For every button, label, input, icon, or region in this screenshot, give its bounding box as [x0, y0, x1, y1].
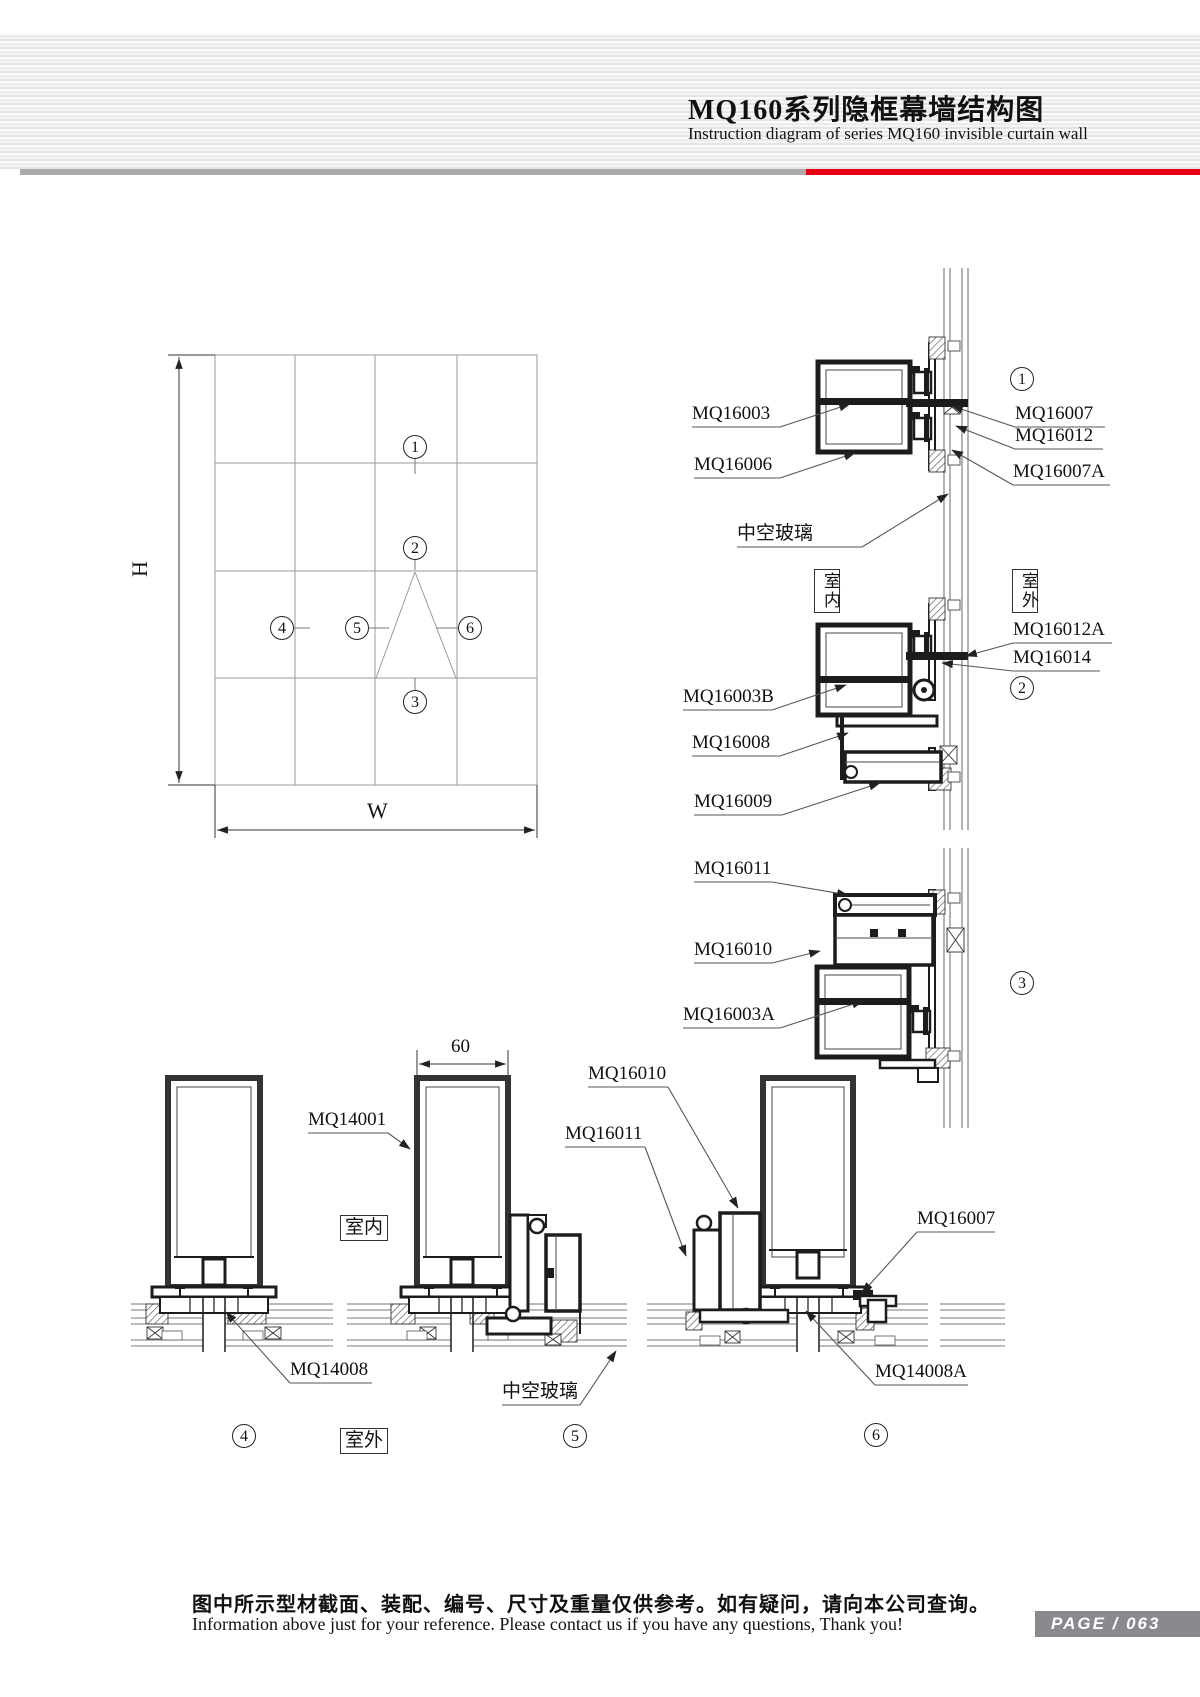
part-label-mq16009: MQ16009: [694, 791, 772, 813]
part-label-glass-btm: 中空玻璃: [502, 1381, 578, 1403]
dim-label-60: 60: [451, 1036, 470, 1058]
part-label-mq14008a: MQ14008A: [875, 1361, 967, 1383]
grid-marker-1: 1: [403, 435, 427, 459]
detail-marker-2: 2: [1010, 676, 1034, 700]
detail-marker-5: 5: [563, 1424, 587, 1448]
detail-marker-3: 3: [1010, 971, 1034, 995]
zone-indoor-vertical: 室内: [814, 569, 840, 613]
elevation-grid: [215, 355, 537, 785]
footer-note-en: Information above just for your referenc…: [192, 1614, 903, 1635]
part-label-mq16012a: MQ16012A: [1013, 619, 1105, 641]
glass-vertical: [944, 268, 968, 1128]
detail-marker-4: 4: [232, 1424, 256, 1448]
part-label-mq14008: MQ14008: [290, 1359, 368, 1381]
page-number-badge: PAGE / 063: [1035, 1611, 1200, 1637]
part-label-mq16010-btm: MQ16010: [588, 1063, 666, 1085]
part-label-mq16012: MQ16012: [1015, 425, 1093, 447]
detail4-profile: [152, 1078, 276, 1352]
grid-marker-4: 4: [270, 616, 294, 640]
part-label-mq16003: MQ16003: [692, 403, 770, 425]
part-label-mq16011-d3: MQ16011: [694, 858, 771, 880]
grid-marker-3: 3: [403, 690, 427, 714]
detail-marker-6: 6: [864, 1423, 888, 1447]
part-label-mq14001: MQ14001: [308, 1109, 386, 1131]
grid-marker-6: 6: [458, 616, 482, 640]
part-label-mq16007a: MQ16007A: [1013, 461, 1105, 483]
detail5-profile: [401, 1078, 580, 1352]
grid-marker-2: 2: [403, 536, 427, 560]
part-label-mq16003b: MQ16003B: [683, 686, 774, 708]
part-label-mq16014: MQ16014: [1013, 647, 1091, 669]
part-label-mq16007-btm: MQ16007: [917, 1208, 995, 1230]
detail-marker-1: 1: [1010, 367, 1034, 391]
grid-marker-5: 5: [345, 616, 369, 640]
zone-outdoor-vertical: 室外: [1012, 569, 1038, 613]
part-label-mq16007: MQ16007: [1015, 403, 1093, 425]
dim-label-W: W: [367, 798, 388, 824]
part-label-mq16003a: MQ16003A: [683, 1004, 775, 1026]
dim-label-H: H: [127, 561, 153, 577]
zone-outdoor-horizontal: 室外: [340, 1428, 388, 1454]
part-label-glass-top: 中空玻璃: [737, 523, 813, 545]
part-label-mq16006: MQ16006: [694, 454, 772, 476]
marker-ticks: [294, 459, 458, 690]
detail3-profile: [817, 895, 938, 1082]
dim-H: [168, 355, 215, 785]
structural-drawing: [0, 0, 1200, 1697]
catalog-page: MQ160系列隐框幕墙结构图 Instruction diagram of se…: [0, 0, 1200, 1697]
part-label-mq16010-d3: MQ16010: [694, 939, 772, 961]
footer-note-cn: 图中所示型材截面、装配、编号、尺寸及重量仅供参考。如有疑问，请向本公司查询。: [192, 1588, 990, 1617]
zone-indoor-horizontal: 室内: [340, 1215, 388, 1241]
part-label-mq16008: MQ16008: [692, 732, 770, 754]
part-label-mq16011-btm: MQ16011: [565, 1123, 642, 1145]
